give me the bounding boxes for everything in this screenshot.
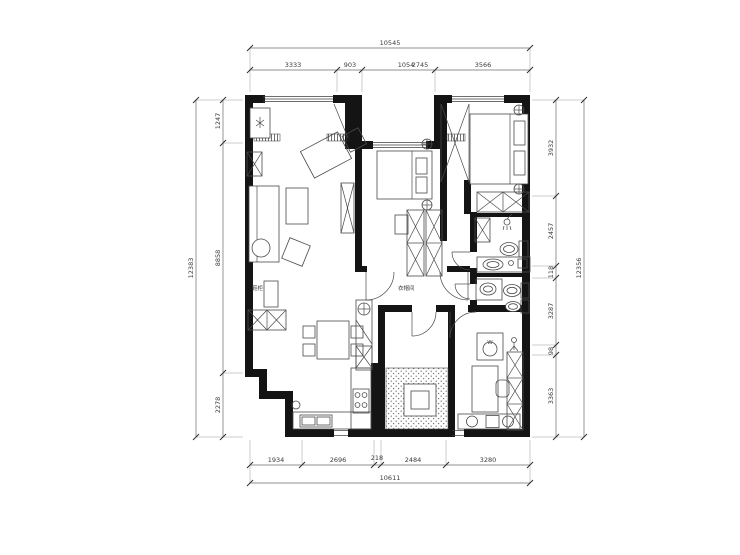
coat-stand-icon	[510, 338, 518, 352]
coffee-table	[286, 188, 308, 224]
wardrobe-mid	[407, 210, 442, 276]
door-arc-bedroom-mid-left	[366, 272, 394, 300]
floor-plan-drawing: 10545 3333 903 1054 2745 3566 1934 2696 …	[0, 0, 740, 555]
bedside-lamp-icon	[422, 139, 432, 149]
tiled-room	[386, 368, 448, 429]
door-arc-bedroom-mid-right	[440, 272, 468, 300]
dim-bottom-s2: 2696	[330, 456, 347, 464]
dim-right-s4: 3287	[547, 303, 555, 320]
dim-right-s1: 3932	[547, 140, 555, 157]
dim-bottom-s3: 218	[371, 454, 383, 462]
round-side-table	[252, 239, 270, 257]
kitchen-furniture	[292, 368, 371, 429]
window-bedroom-right-top	[452, 97, 504, 102]
bedroom-mid-furniture: 衣帽间	[377, 139, 442, 292]
dimension-right: 3932 2457 118 3287 98 3363 12356	[547, 97, 587, 440]
bedroom-right-furniture	[470, 105, 529, 212]
dim-bottom-s4: 2484	[405, 456, 422, 464]
dresser	[395, 215, 408, 234]
dining-chair	[303, 326, 315, 338]
vanity-lower	[476, 279, 502, 300]
bathroom-fixtures	[475, 214, 530, 300]
desk	[472, 366, 509, 412]
dim-top-s1: 3333	[285, 61, 302, 69]
dining-table	[317, 321, 349, 359]
dimension-bottom: 1934 2696 218 2484 3280 10611	[247, 454, 533, 486]
bedside-lamp-icon	[422, 200, 432, 210]
cabinet-x-small	[475, 218, 490, 242]
dim-bottom-total: 10611	[380, 474, 401, 482]
washer-label: W	[487, 340, 493, 346]
door-arc-tiled-room	[412, 312, 436, 336]
study-furniture: W	[458, 300, 529, 430]
dim-left-total: 12383	[187, 258, 195, 279]
floor-plan-page: 10545 3333 903 1054 2745 3566 1934 2696 …	[0, 0, 740, 555]
dim-bottom-s5: 3280	[480, 456, 497, 464]
sill-comb-2	[327, 134, 349, 141]
dimension-left: 12383 1247 8858 2278	[187, 97, 226, 440]
shoe-cabinet	[248, 310, 286, 330]
dim-top-s4: 3566	[475, 61, 492, 69]
window-living-top	[263, 97, 333, 102]
dim-right-s5: 98	[547, 347, 555, 355]
low-cabinet	[458, 414, 520, 429]
dim-left-s2: 8858	[214, 250, 222, 267]
dim-left-s3: 2278	[214, 397, 222, 414]
dim-top-s2: 903	[344, 61, 356, 69]
bed-mid	[377, 151, 432, 199]
wardrobe-right	[477, 192, 529, 212]
dim-right-s6: 3363	[547, 388, 555, 405]
window-bedroom-mid-top	[373, 143, 426, 148]
room-label-shoe-cabinet: 鞋柜	[252, 284, 264, 292]
tv-cabinet	[341, 183, 354, 233]
dim-top-total: 10545	[380, 39, 401, 47]
bed-right	[470, 114, 528, 184]
dim-right-total: 12356	[575, 258, 583, 279]
dining-chair	[303, 344, 315, 356]
dim-right-s3: 118	[547, 266, 555, 278]
tall-cabinet-column	[356, 300, 372, 370]
washing-machine: W	[477, 333, 503, 360]
dining-furniture	[303, 300, 372, 370]
dim-left-s1: 1247	[214, 113, 222, 130]
dimension-top: 10545 3333 903 1054 2745 3566	[247, 39, 533, 73]
room-label-wardrobe: 衣帽间	[398, 284, 415, 292]
accent-chair	[282, 238, 311, 267]
dim-right-s2: 2457	[547, 223, 555, 240]
dim-top-s3b: 2745	[412, 61, 429, 69]
plant-stand	[264, 281, 278, 307]
bedside-lamp-icon	[514, 184, 524, 194]
bedside-lamp-icon	[514, 105, 524, 115]
floor-inset-square	[404, 384, 436, 416]
opening-bottom-1	[334, 431, 348, 436]
kitchen-counter-right	[351, 368, 371, 429]
dim-bottom-s1: 1934	[268, 456, 285, 464]
stove	[353, 389, 369, 413]
kitchen-sink	[292, 401, 332, 427]
